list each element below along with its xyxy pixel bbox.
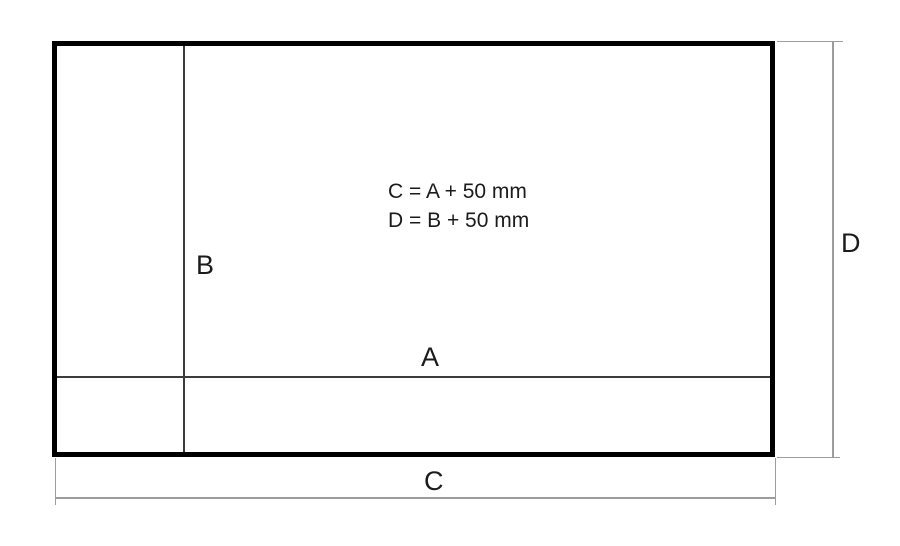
dimension-c-line [55,497,776,499]
formula-d: D = B + 50 mm [388,206,529,235]
label-inner-height-b: B [196,252,214,279]
inner-vertical-line [183,46,185,452]
label-outer-width-c: C [424,468,444,495]
dimension-d-line [832,41,834,458]
diagram-canvas: C = A + 50 mm D = B + 50 mm A B D C [0,0,900,546]
outer-rectangle [52,41,775,457]
inner-horizontal-line [57,376,770,378]
label-inner-width-a: A [421,344,439,371]
dimension-d-extension-bottom [777,457,840,458]
label-outer-height-d: D [841,230,861,257]
formula-block: C = A + 50 mm D = B + 50 mm [388,177,529,235]
formula-c: C = A + 50 mm [388,177,529,206]
